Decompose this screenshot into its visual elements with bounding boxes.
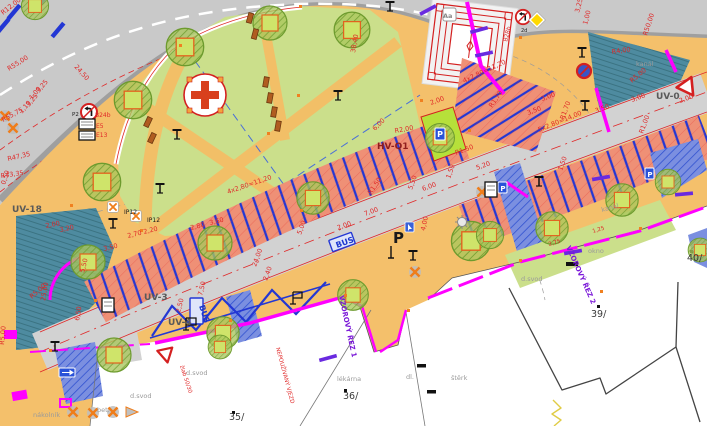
map-label: d.svod <box>186 369 208 377</box>
map-label: HV-Q1 <box>377 142 409 152</box>
map-label: UV-3 <box>144 293 168 303</box>
one-way-sign-icon <box>59 368 75 377</box>
map-label: 40/ <box>687 253 703 264</box>
map-label: Aa <box>443 12 452 20</box>
map-label: 36/ <box>343 391 359 402</box>
map-label: NEPOUŽÍVANÝ VJEZD <box>274 346 297 404</box>
map-label: B24b <box>95 112 111 119</box>
playground-cross-icon <box>184 74 226 116</box>
no-stopping-sign-icon <box>577 64 591 78</box>
manhole-icon <box>455 215 469 229</box>
map-label: 2d <box>521 28 527 34</box>
map-label: UV-4 <box>168 318 192 328</box>
map-label: bet. <box>97 406 110 414</box>
cursor-sign-icon <box>405 222 414 232</box>
map-label: 39/ <box>591 309 607 320</box>
map-label: P <box>647 171 652 179</box>
map-label: P <box>393 229 404 247</box>
map-label: P <box>437 130 443 139</box>
map-label: IP12 <box>147 217 160 224</box>
map-label: štěrk <box>451 374 468 382</box>
map-label: UV-18 <box>12 205 42 215</box>
map-label: d.svod <box>130 392 152 400</box>
sign-plate-cluster <box>79 119 95 140</box>
map-label: kanál <box>636 60 654 68</box>
map-label: dl. <box>406 373 414 381</box>
map-label: P <box>500 185 505 193</box>
site-plan-drawing: UV-18UV-3UV-4UV-0HV-Q135/36/39/40/kanálk… <box>0 0 707 426</box>
map-label: P2 <box>72 112 79 118</box>
map-label: UV-0 <box>656 92 680 102</box>
map-label: E5 <box>96 123 104 130</box>
map-label: E13 <box>96 132 108 139</box>
map-label: IP12 <box>124 209 137 216</box>
map-label: nákolník <box>33 411 60 419</box>
map-label: lékárna <box>337 375 361 383</box>
map-label: okno <box>588 247 604 255</box>
map-label: 35/ <box>229 412 245 423</box>
map-label: d.svod <box>521 275 543 283</box>
